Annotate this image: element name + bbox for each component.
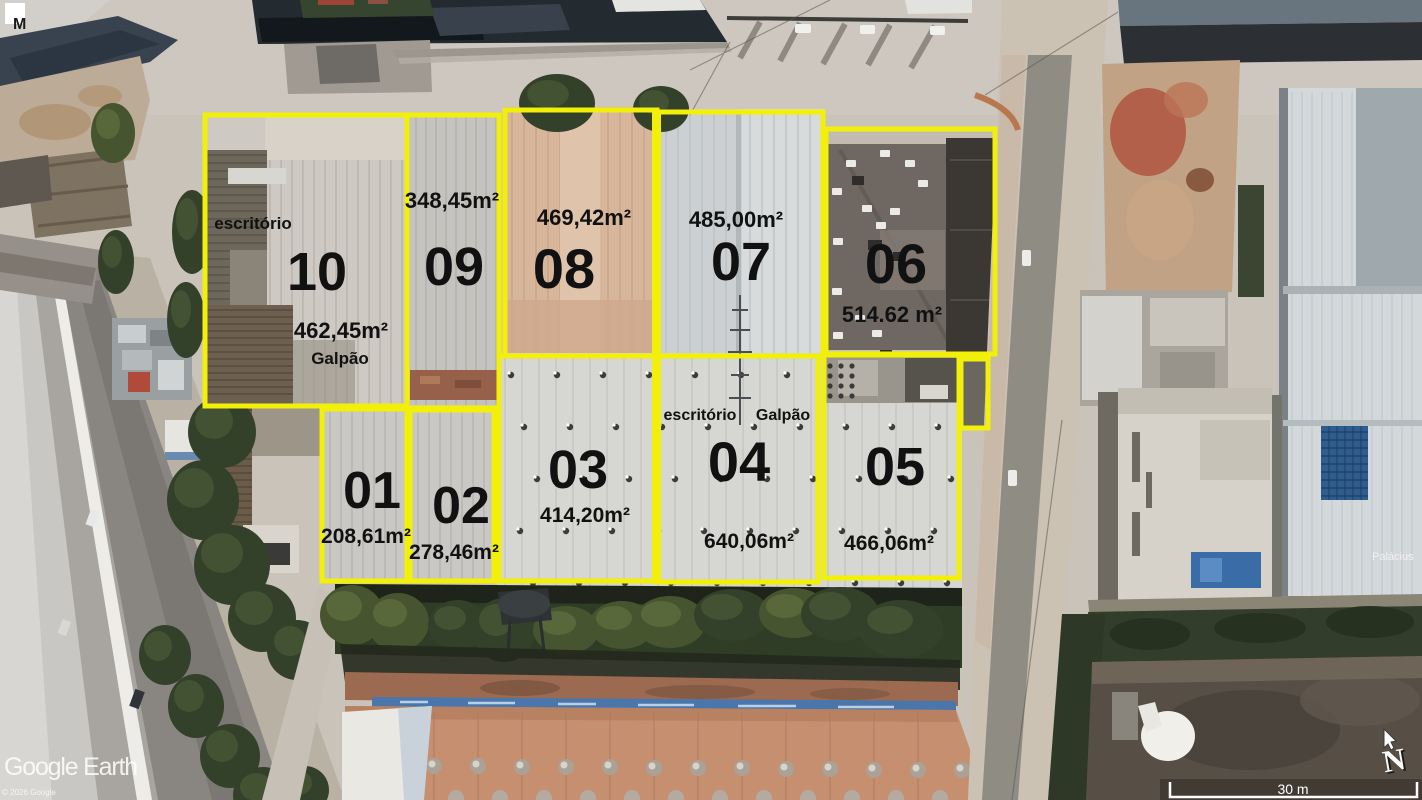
svg-text:208,61m²: 208,61m² [321, 525, 411, 548]
svg-text:469,42m²: 469,42m² [537, 205, 631, 230]
svg-text:08: 08 [533, 237, 595, 300]
svg-text:06: 06 [865, 232, 927, 295]
svg-text:07: 07 [711, 232, 771, 292]
svg-text:M: M [13, 16, 26, 33]
svg-text:escritório: escritório [214, 214, 291, 233]
svg-text:© 2026 Google: © 2026 Google [2, 788, 56, 797]
svg-text:Google Earth: Google Earth [4, 753, 137, 781]
svg-text:10: 10 [287, 242, 347, 302]
svg-text:462,45m²: 462,45m² [294, 318, 388, 343]
svg-text:514.62 m²: 514.62 m² [842, 302, 942, 327]
svg-text:640,06m²: 640,06m² [704, 530, 794, 553]
svg-text:278,46m²: 278,46m² [409, 541, 499, 564]
svg-text:02: 02 [432, 477, 490, 535]
svg-text:escritório: escritório [664, 407, 737, 424]
svg-text:03: 03 [548, 440, 608, 500]
svg-text:Palácius: Palácius [1372, 551, 1414, 563]
svg-text:348,45m²: 348,45m² [405, 188, 499, 213]
svg-text:01: 01 [343, 462, 401, 520]
svg-text:Galpão: Galpão [311, 349, 369, 368]
svg-text:05: 05 [865, 437, 925, 497]
svg-text:466,06m²: 466,06m² [844, 532, 934, 555]
svg-text:414,20m²: 414,20m² [540, 504, 630, 527]
svg-text:30 m: 30 m [1277, 781, 1308, 797]
svg-text:04: 04 [708, 430, 770, 493]
svg-text:09: 09 [424, 237, 484, 297]
svg-text:485,00m²: 485,00m² [689, 207, 783, 232]
svg-text:Galpão: Galpão [756, 407, 810, 424]
